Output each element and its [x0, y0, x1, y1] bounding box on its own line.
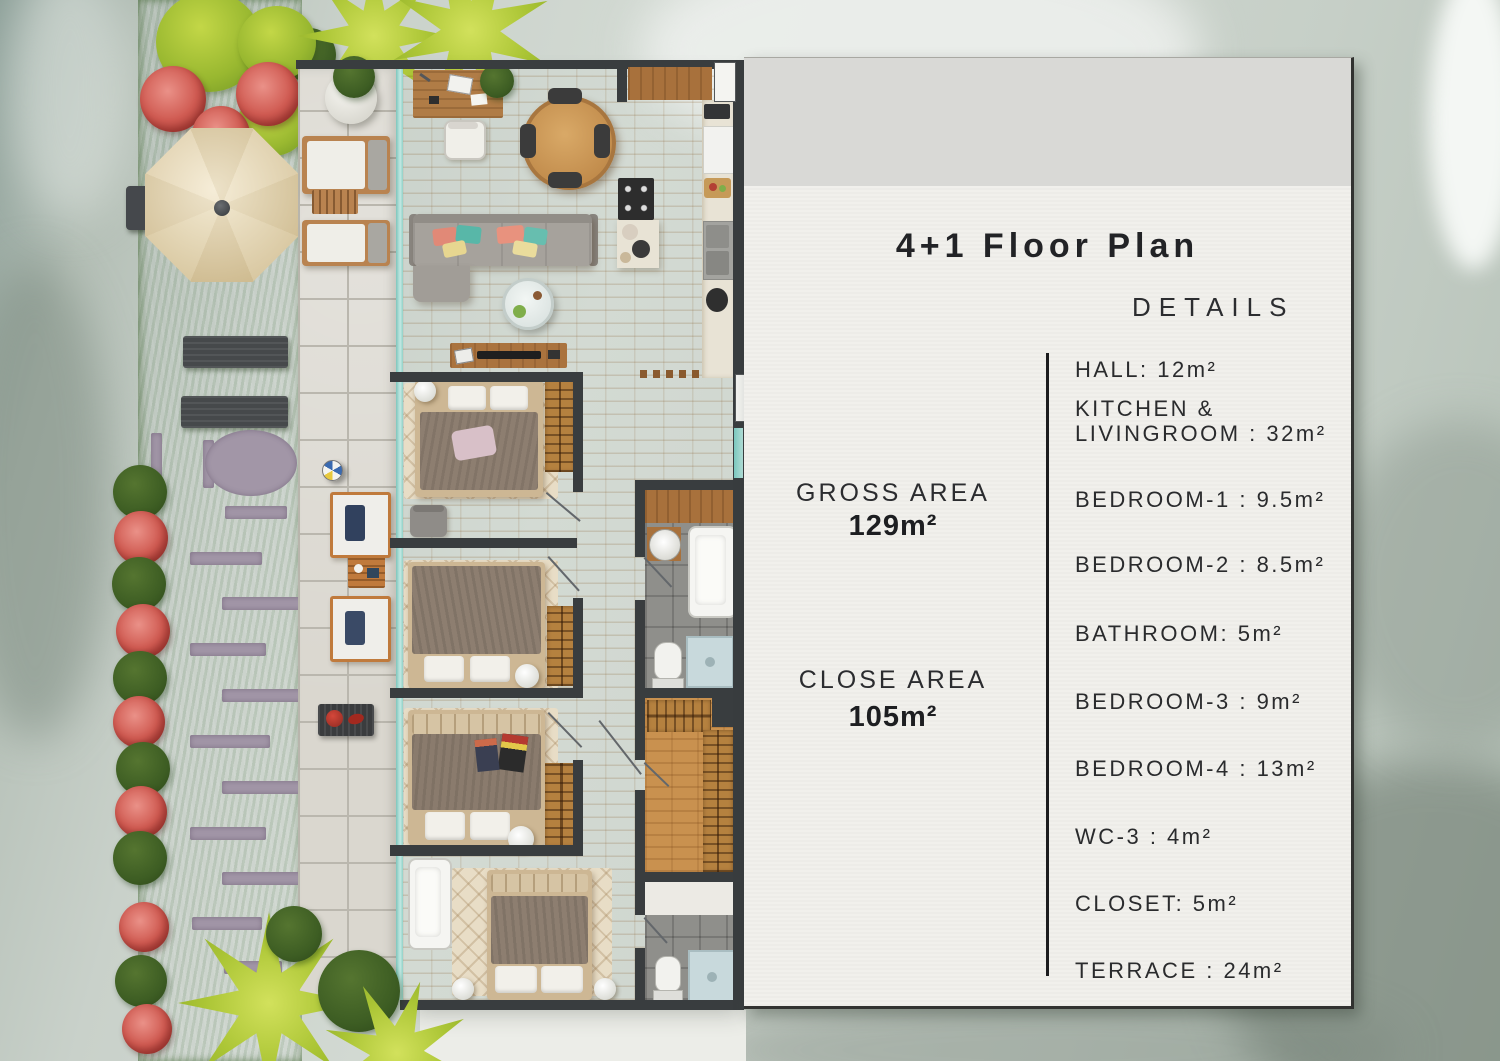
pillow	[541, 966, 583, 993]
desk-chair	[444, 120, 486, 160]
bush	[113, 831, 167, 885]
trash-bin	[706, 288, 728, 312]
towel	[345, 505, 365, 541]
watercolor-blot	[10, 0, 130, 220]
speaker	[548, 350, 560, 359]
indoor-plant	[480, 64, 514, 98]
detail-row-hall: HALL: 12m²	[1075, 357, 1217, 382]
sofa-chaise	[413, 266, 470, 302]
wall-corridor	[573, 598, 583, 688]
shower-tray	[688, 950, 736, 1004]
bush	[266, 906, 322, 962]
watercolor-blot	[0, 260, 110, 740]
chair-cushion	[307, 141, 365, 189]
shower-tray	[686, 636, 734, 688]
wall-bathroom-top	[635, 480, 744, 490]
tub-basin	[695, 535, 726, 605]
toilet-bowl	[655, 956, 681, 992]
detail-row-wc-3: WC-3 : 4m²	[1075, 824, 1212, 849]
bathtub	[408, 858, 452, 950]
toilet	[653, 956, 681, 1000]
coffee-table	[502, 278, 554, 330]
fridge	[703, 126, 734, 174]
stepping-stone	[225, 506, 287, 519]
detail-line: HALL: 12m²	[1075, 357, 1217, 382]
wall-right	[733, 60, 744, 1010]
pillow	[425, 812, 465, 840]
lounger-table	[348, 556, 385, 588]
detail-row-bedroom-1: BEDROOM-1 : 9.5m²	[1075, 487, 1325, 512]
pillow	[495, 966, 537, 993]
volleyball	[322, 460, 343, 481]
garden-gravel-patch	[205, 430, 297, 496]
detail-line: WC-3 : 4m²	[1075, 824, 1212, 849]
magazine	[474, 738, 499, 772]
wall-bedroom4-top	[390, 845, 583, 856]
flower-bush	[116, 604, 170, 658]
stepping-stone	[190, 643, 266, 656]
terrace-side-table	[312, 190, 358, 214]
nightstand	[515, 664, 539, 688]
garden-bench	[181, 396, 288, 428]
book	[367, 568, 379, 578]
pot	[632, 240, 650, 258]
floor-plan-poster: 4+1 Floor Plan DETAILS GROSS AREA 129m² …	[0, 0, 1500, 1061]
detail-line: CLOSET: 5m²	[1075, 891, 1238, 916]
pillow	[448, 386, 486, 410]
wall-closet-corridor	[635, 790, 645, 872]
wall-bottom	[400, 1000, 744, 1010]
desk-phone	[429, 96, 439, 104]
sink-basin	[706, 251, 729, 275]
stove	[618, 178, 654, 220]
info-panel: 4+1 Floor Plan DETAILS GROSS AREA 129m² …	[744, 57, 1354, 1009]
detail-line: BEDROOM-1 : 9.5m²	[1075, 487, 1325, 512]
detail-line: TERRACE : 24m²	[1075, 958, 1284, 983]
pillow	[490, 386, 528, 410]
hall-armchair	[410, 505, 447, 537]
dining-chair	[594, 124, 610, 158]
sink-basin	[706, 225, 729, 248]
decor-bowl	[533, 291, 542, 300]
decor-plant	[513, 305, 526, 318]
toilet-bowl	[654, 642, 682, 680]
detail-line: BEDROOM-2 : 8.5m²	[1075, 552, 1325, 577]
food	[719, 185, 726, 192]
gross-area-label: GROSS AREA	[753, 479, 1033, 508]
glass-wall	[396, 68, 403, 1000]
bedroom1-bed	[415, 380, 543, 497]
bedroom1-wardrobe	[545, 376, 575, 472]
detail-row-bedroom-3: BEDROOM-3 : 9m²	[1075, 689, 1302, 714]
detail-line: BEDROOM-4 : 13m²	[1075, 756, 1317, 781]
dining-chair	[520, 124, 536, 158]
chair-cushion	[307, 224, 365, 262]
bottom-pavement	[420, 1010, 746, 1061]
plan-title: 4+1 Floor Plan	[744, 227, 1351, 266]
nightstand	[414, 380, 436, 402]
grill-kettle	[326, 710, 343, 727]
shower-drain	[705, 657, 715, 667]
detail-row-bedroom-4: BEDROOM-4 : 13m²	[1075, 756, 1317, 781]
desk-lamp	[419, 73, 431, 82]
papers	[470, 93, 487, 106]
wall-wc-corridor	[635, 882, 645, 915]
towel	[345, 611, 365, 645]
stepping-stone	[190, 735, 270, 748]
bathroom-vanity-cabinet	[645, 490, 733, 523]
sun-lounger	[330, 492, 391, 558]
wall-bedroom2-top	[390, 538, 577, 548]
terrace-armchair	[302, 220, 390, 266]
wall-corridor	[573, 760, 583, 845]
sun-lounger	[330, 596, 391, 662]
laptop	[447, 74, 474, 95]
entry-threshold-dots	[640, 370, 700, 378]
bathtub	[688, 526, 737, 618]
detail-line: LIVINGROOM : 32m²	[1075, 421, 1327, 446]
headboard-cushions	[491, 874, 588, 892]
bowl	[622, 224, 638, 240]
bush	[115, 955, 167, 1007]
watercolor-blot	[1330, 420, 1500, 750]
tub-basin	[415, 867, 441, 937]
wall-bath-corridor	[635, 600, 645, 698]
blanket	[491, 896, 588, 964]
wall-closet-wc	[635, 872, 744, 882]
detail-line: BATHROOM: 5m²	[1075, 621, 1283, 646]
bedroom3-bed	[408, 710, 545, 845]
nightstand	[452, 978, 474, 1000]
wall-bath-corridor	[635, 490, 645, 557]
blanket	[412, 566, 541, 654]
laptop	[454, 348, 474, 365]
detail-row-terrace: TERRACE : 24m²	[1075, 958, 1284, 983]
watercolor-blot	[1428, 0, 1500, 270]
entry-door	[714, 62, 736, 102]
flower-bush	[113, 696, 165, 748]
dining-chair	[548, 172, 582, 188]
wc-entry-floor	[645, 882, 733, 915]
detail-row-kitchen-livingroom: KITCHEN & LIVINGROOM : 32m²	[1075, 396, 1327, 446]
gross-area-value: 129m²	[753, 510, 1033, 543]
wall-closet-corner	[712, 694, 733, 727]
pillow	[470, 656, 510, 682]
close-area-label: CLOSE AREA	[753, 666, 1033, 695]
detail-row-closet: CLOSET: 5m²	[1075, 891, 1238, 916]
terrace-armchair	[302, 136, 390, 194]
umbrella-knob	[214, 200, 230, 216]
bedroom4-bed	[487, 870, 592, 1000]
entry-cabinet	[628, 67, 712, 100]
bathroom-sink	[649, 529, 681, 561]
headboard-cushions	[412, 714, 541, 734]
stepping-stone	[222, 872, 310, 885]
tv	[477, 351, 541, 359]
bowl	[620, 252, 631, 263]
detail-line: BEDROOM-3 : 9m²	[1075, 689, 1302, 714]
closet-hanger-rail	[703, 730, 733, 872]
wall-wc-corridor	[635, 948, 645, 1000]
garden-bench	[183, 336, 288, 368]
stepping-stone	[192, 917, 262, 930]
wall-bedroom3-top	[390, 688, 583, 698]
wall-entry-stub	[617, 60, 627, 102]
details-heading: DETAILS	[1132, 292, 1294, 323]
chair-backrest	[368, 140, 387, 190]
dining-chair	[548, 88, 582, 104]
details-divider	[1046, 353, 1049, 976]
chair-back	[448, 122, 478, 129]
stepping-stone	[190, 552, 262, 565]
bush	[112, 557, 166, 611]
barbecue-grill	[318, 704, 374, 736]
detail-row-bedroom-2: BEDROOM-2 : 8.5m²	[1075, 552, 1325, 577]
panel-header-band	[744, 58, 1351, 186]
wall-bedroom1-top	[390, 372, 583, 382]
toaster	[704, 104, 730, 119]
stepping-stone	[190, 827, 266, 840]
flower-bush	[122, 1004, 172, 1054]
nightstand	[594, 978, 616, 1000]
chair-backrest	[368, 223, 387, 263]
cutting-board	[704, 178, 731, 198]
pillow	[470, 812, 510, 840]
detail-line: KITCHEN &	[1075, 396, 1327, 421]
shower-drain	[707, 972, 717, 982]
detail-row-bathroom: BATHROOM: 5m²	[1075, 621, 1283, 646]
grill-pan	[347, 712, 365, 726]
close-area-value: 105m²	[753, 701, 1033, 734]
kitchen-sink	[703, 221, 734, 280]
toilet	[652, 642, 682, 688]
window	[734, 428, 743, 478]
flower-bush	[119, 902, 169, 952]
cup	[354, 564, 363, 573]
chair-back	[413, 505, 444, 512]
closet-hanger-rail	[647, 700, 711, 732]
flower-bush	[236, 62, 300, 126]
wall-corridor	[573, 372, 583, 492]
wall-closet-corridor	[635, 698, 645, 760]
magazine	[498, 733, 529, 772]
tv-console	[450, 343, 567, 368]
pillow	[424, 656, 464, 682]
food	[709, 183, 717, 191]
